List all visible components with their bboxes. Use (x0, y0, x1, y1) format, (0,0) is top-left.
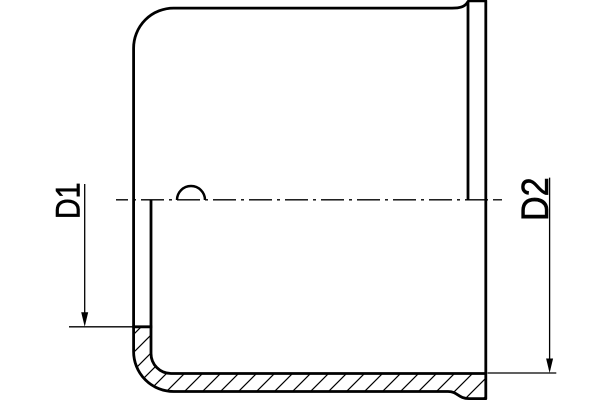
svg-text:D2: D2 (513, 177, 556, 221)
svg-text:D1: D1 (49, 183, 87, 219)
